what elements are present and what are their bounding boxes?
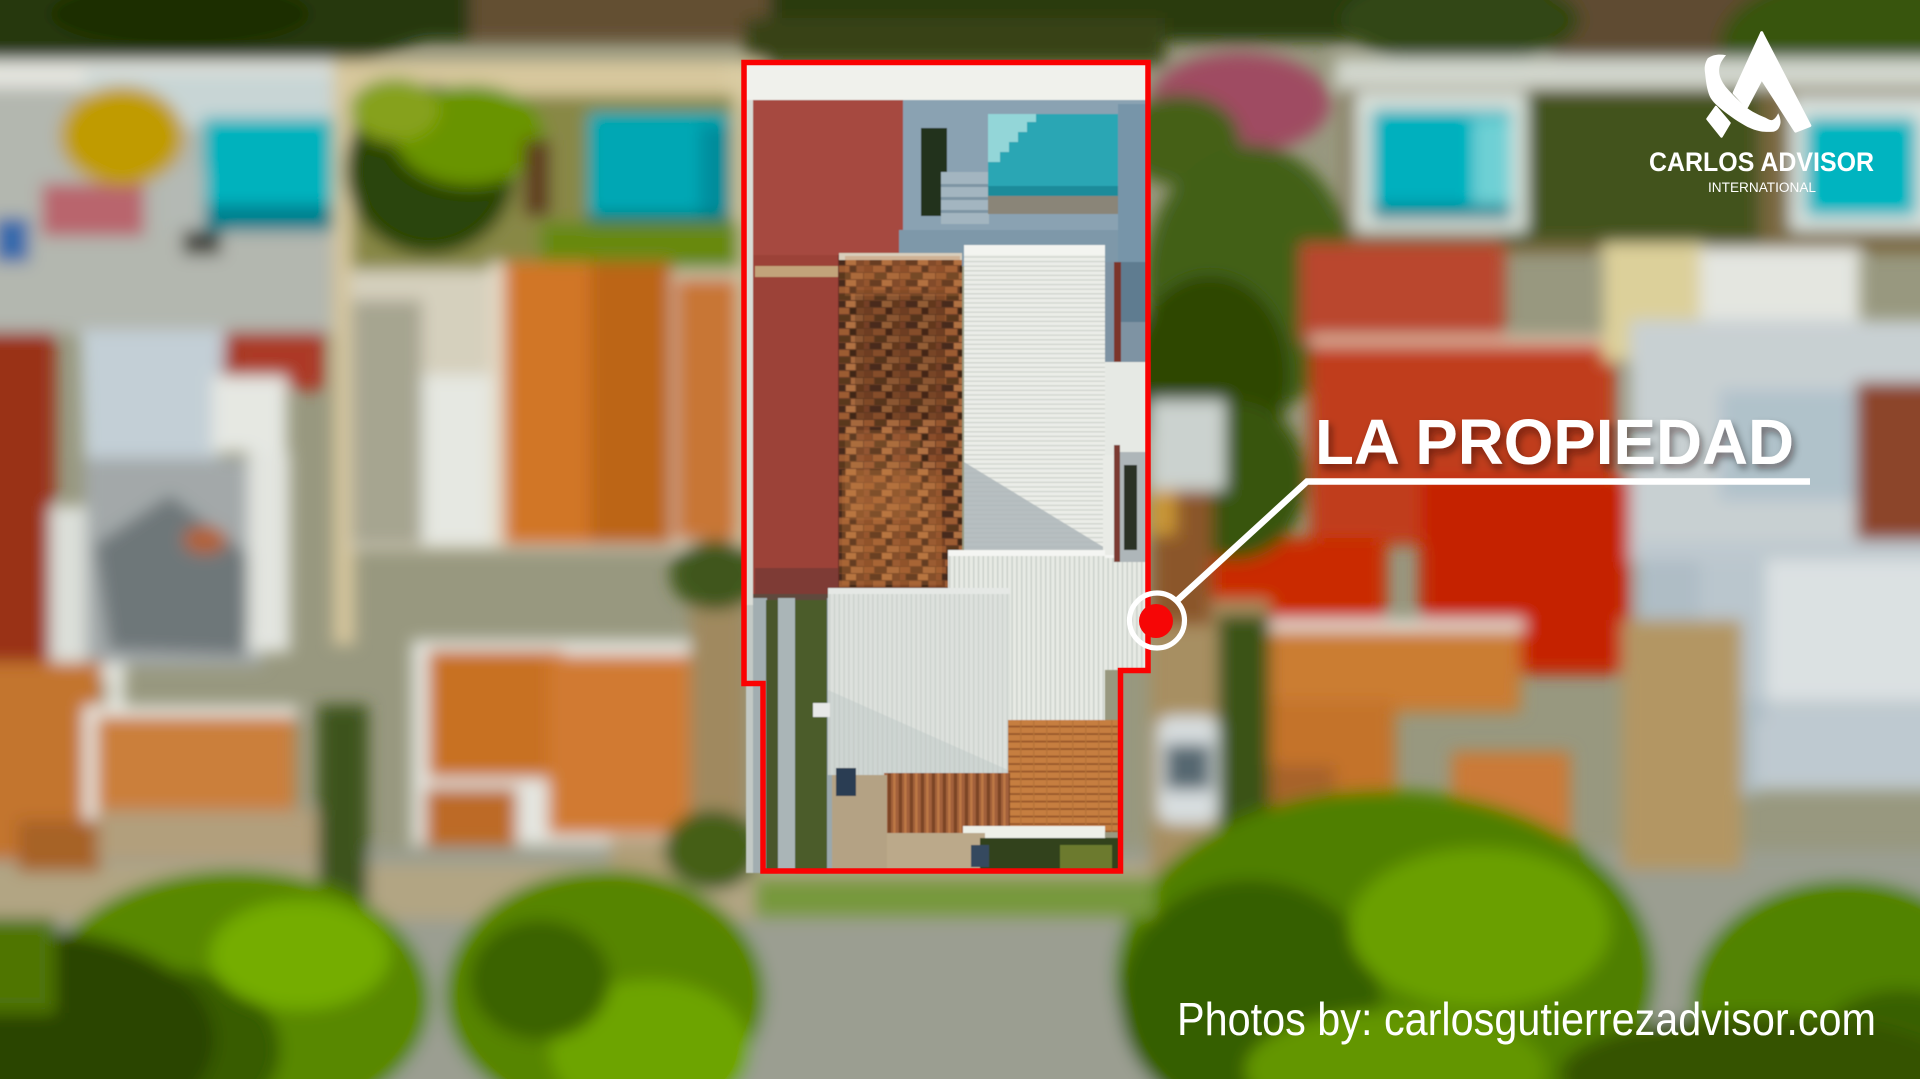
svg-text:Photos by: carlosgutierrezadvi: Photos by: carlosgutierrezadvisor.com (1177, 993, 1876, 1045)
svg-text:INTERNATIONAL: INTERNATIONAL (1708, 180, 1816, 195)
svg-text:CARLOS ADVISOR: CARLOS ADVISOR (1649, 147, 1874, 177)
svg-text:LA PROPIEDAD: LA PROPIEDAD (1315, 406, 1794, 478)
